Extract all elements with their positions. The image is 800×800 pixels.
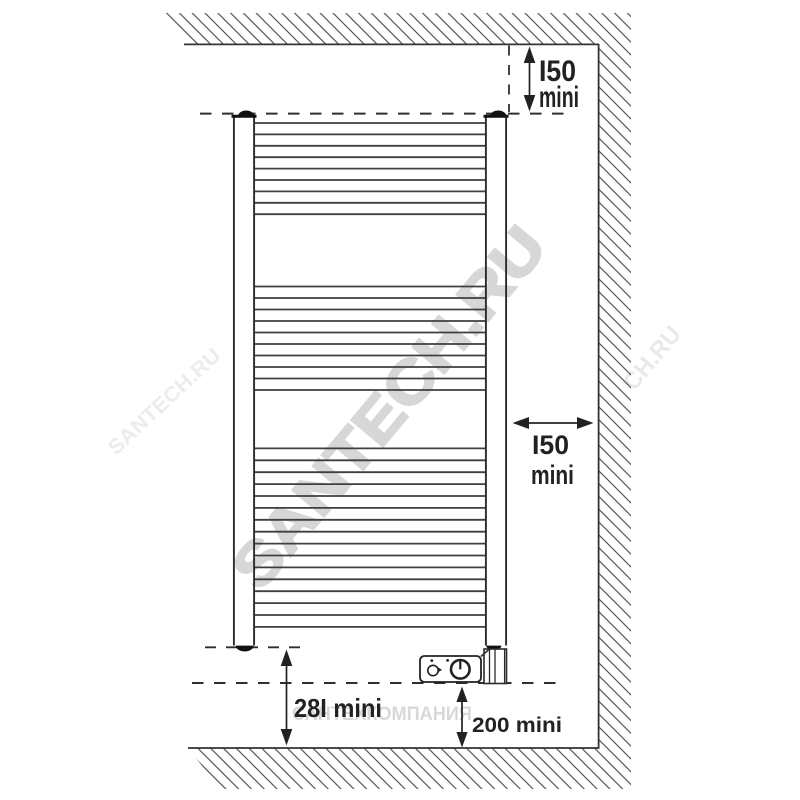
- svg-text:mini: mini: [539, 81, 579, 114]
- svg-text:200 mini: 200 mini: [472, 714, 562, 737]
- svg-text:28I mini: 28I mini: [294, 693, 382, 723]
- svg-text:I50: I50: [532, 430, 569, 460]
- svg-text:SANTECH.RU: SANTECH.RU: [104, 344, 226, 460]
- svg-text:mini: mini: [531, 460, 574, 490]
